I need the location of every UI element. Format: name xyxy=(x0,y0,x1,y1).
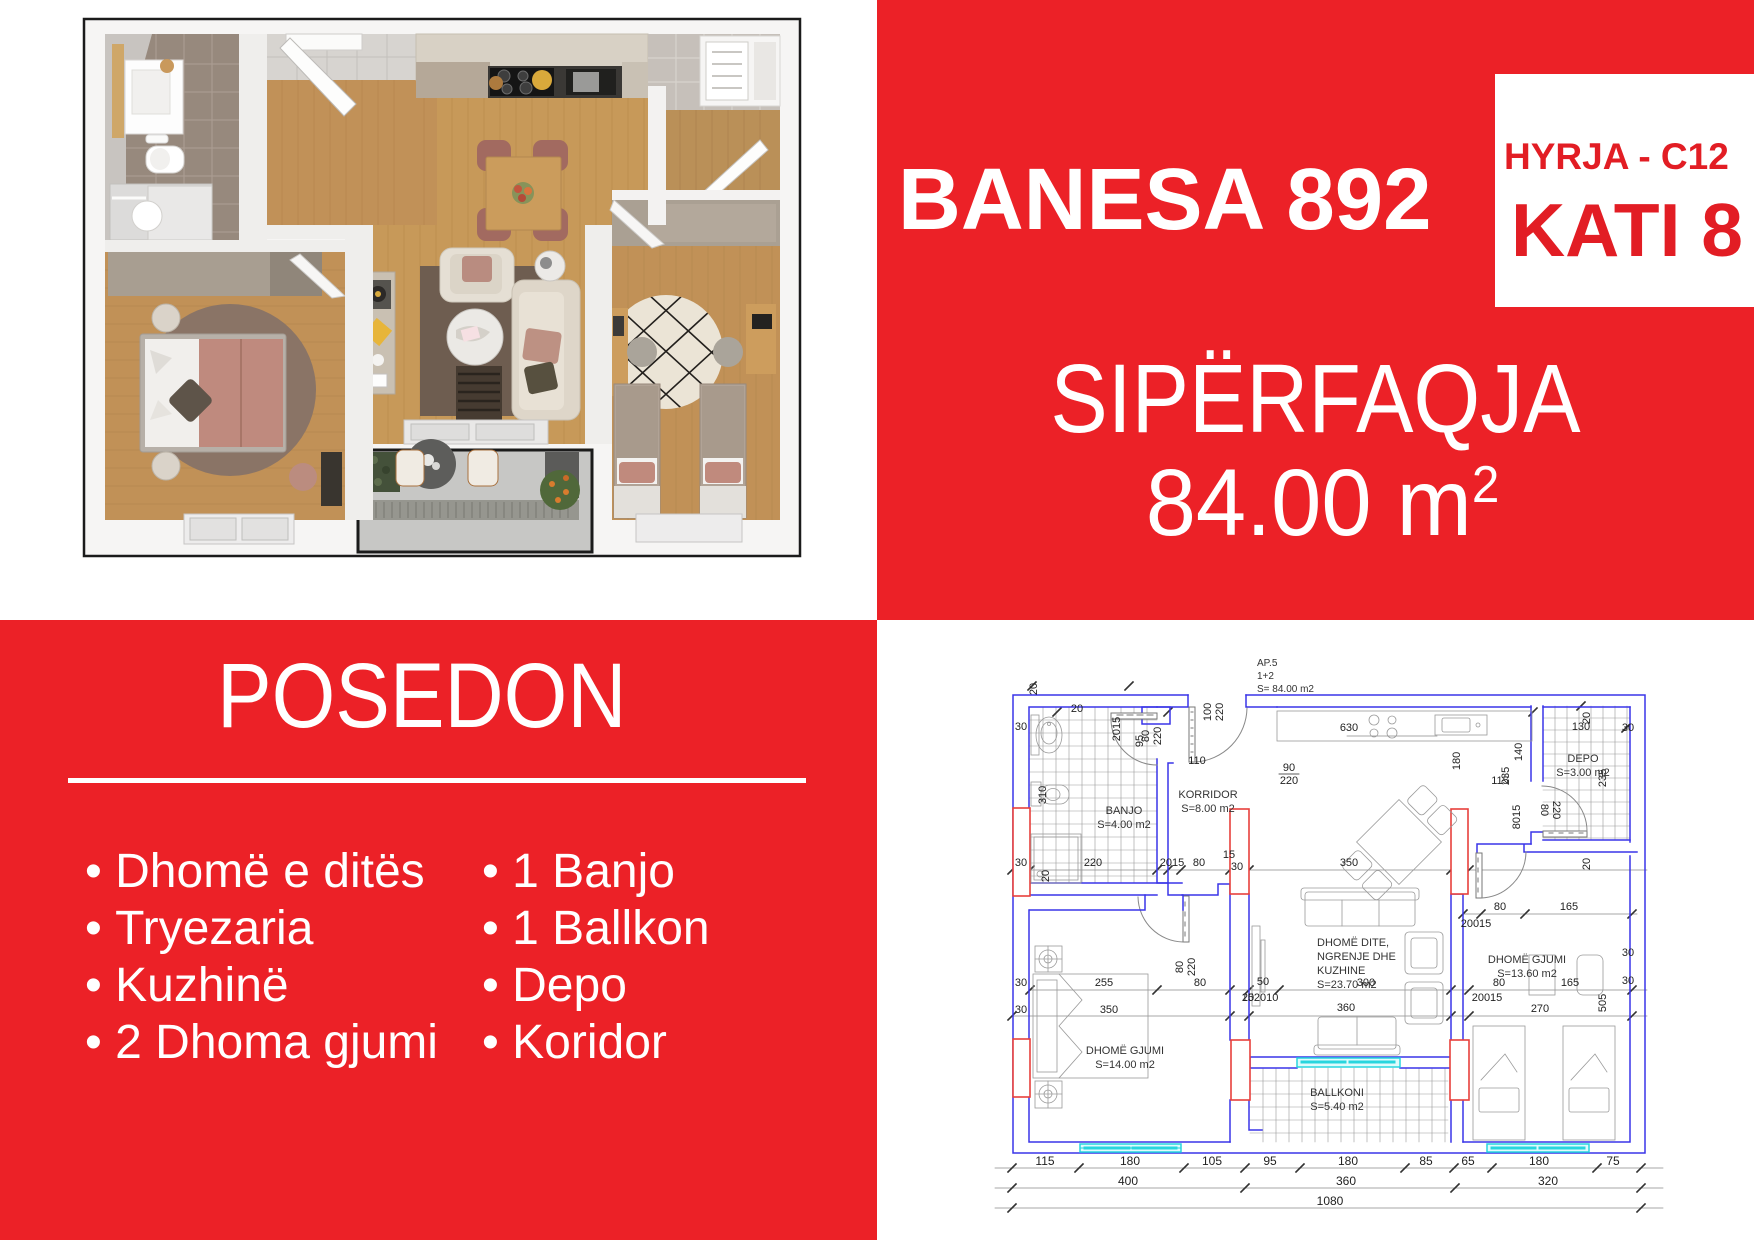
svg-text:165: 165 xyxy=(1560,901,1578,913)
svg-text:S= 84.00 m2: S= 84.00 m2 xyxy=(1257,684,1314,695)
svg-text:350: 350 xyxy=(1100,1004,1118,1016)
svg-text:S=13.60 m2: S=13.60 m2 xyxy=(1497,968,1557,980)
svg-text:80: 80 xyxy=(1140,730,1152,742)
svg-text:30: 30 xyxy=(1622,975,1634,987)
svg-text:90: 90 xyxy=(1283,762,1295,774)
svg-text:152010: 152010 xyxy=(1242,992,1279,1004)
svg-text:30: 30 xyxy=(1622,722,1634,734)
svg-text:80: 80 xyxy=(1194,977,1206,989)
svg-text:80: 80 xyxy=(1538,804,1550,816)
svg-text:360: 360 xyxy=(1336,1174,1356,1188)
svg-text:30: 30 xyxy=(1015,1004,1027,1016)
svg-text:DHOMË DITE,: DHOMË DITE, xyxy=(1317,937,1389,949)
svg-text:320: 320 xyxy=(1538,1174,1558,1188)
svg-text:235: 235 xyxy=(1500,767,1512,785)
svg-text:220: 220 xyxy=(1214,703,1226,721)
svg-text:KUZHINE: KUZHINE xyxy=(1317,965,1365,977)
svg-text:180: 180 xyxy=(1451,752,1463,770)
svg-text:85: 85 xyxy=(1419,1154,1433,1168)
svg-text:255: 255 xyxy=(1095,977,1113,989)
svg-text:105: 105 xyxy=(1202,1154,1222,1168)
svg-text:DHOMË GJUMI: DHOMË GJUMI xyxy=(1488,954,1566,966)
svg-text:AP.5: AP.5 xyxy=(1257,658,1278,669)
svg-text:80: 80 xyxy=(1193,857,1205,869)
svg-text:220: 220 xyxy=(1186,958,1198,976)
svg-text:S=14.00 m2: S=14.00 m2 xyxy=(1095,1059,1155,1071)
svg-text:300: 300 xyxy=(1357,977,1375,989)
svg-text:20: 20 xyxy=(1581,858,1593,870)
svg-text:220: 220 xyxy=(1550,801,1562,819)
svg-text:1+2: 1+2 xyxy=(1257,671,1274,682)
svg-text:15: 15 xyxy=(1223,849,1235,861)
svg-text:NGRENJE DHE: NGRENJE DHE xyxy=(1317,951,1396,963)
svg-text:2015: 2015 xyxy=(1160,857,1184,869)
svg-text:50: 50 xyxy=(1257,976,1269,988)
svg-text:30: 30 xyxy=(1015,857,1027,869)
svg-text:220: 220 xyxy=(1152,727,1164,745)
svg-text:DHOMË GJUMI: DHOMË GJUMI xyxy=(1086,1045,1164,1057)
svg-text:310: 310 xyxy=(1037,786,1049,804)
svg-text:S=4.00 m2: S=4.00 m2 xyxy=(1097,819,1151,831)
svg-text:80: 80 xyxy=(1494,901,1506,913)
svg-text:1080: 1080 xyxy=(1317,1194,1344,1208)
svg-text:BANJO: BANJO xyxy=(1106,805,1143,817)
svg-text:235: 235 xyxy=(1597,769,1609,787)
svg-text:180: 180 xyxy=(1120,1154,1140,1168)
svg-text:140: 140 xyxy=(1513,743,1525,761)
svg-text:630: 630 xyxy=(1340,722,1358,734)
svg-text:360: 360 xyxy=(1337,1002,1355,1014)
svg-text:80: 80 xyxy=(1493,977,1505,989)
svg-text:220: 220 xyxy=(1280,775,1298,787)
svg-text:110: 110 xyxy=(1188,755,1206,767)
svg-text:20: 20 xyxy=(1581,712,1593,724)
svg-text:S=8.00 m2: S=8.00 m2 xyxy=(1181,803,1235,815)
svg-text:KORRIDOR: KORRIDOR xyxy=(1178,789,1237,801)
svg-text:115: 115 xyxy=(1035,1154,1054,1168)
svg-text:75: 75 xyxy=(1606,1154,1620,1168)
svg-text:95: 95 xyxy=(1263,1154,1277,1168)
svg-text:400: 400 xyxy=(1118,1174,1138,1188)
svg-text:270: 270 xyxy=(1531,1003,1549,1015)
svg-text:65: 65 xyxy=(1461,1154,1475,1168)
svg-text:180: 180 xyxy=(1529,1154,1549,1168)
svg-text:30: 30 xyxy=(1622,947,1634,959)
svg-text:20015: 20015 xyxy=(1461,918,1492,930)
svg-text:2015: 2015 xyxy=(1111,717,1123,741)
svg-text:DEPO: DEPO xyxy=(1567,753,1599,765)
svg-text:80: 80 xyxy=(1174,961,1186,973)
svg-text:30: 30 xyxy=(1015,721,1027,733)
svg-text:220: 220 xyxy=(1084,857,1102,869)
svg-text:20015: 20015 xyxy=(1472,992,1503,1004)
svg-text:20: 20 xyxy=(1028,683,1040,695)
svg-text:505: 505 xyxy=(1597,994,1609,1012)
svg-text:8015: 8015 xyxy=(1511,805,1523,829)
svg-text:350: 350 xyxy=(1340,857,1358,869)
svg-text:180: 180 xyxy=(1338,1154,1358,1168)
svg-text:20: 20 xyxy=(1040,870,1052,882)
svg-text:S=5.40 m2: S=5.40 m2 xyxy=(1310,1101,1364,1113)
svg-text:BALLKONI: BALLKONI xyxy=(1310,1087,1364,1099)
svg-text:30: 30 xyxy=(1015,977,1027,989)
svg-text:100: 100 xyxy=(1202,703,1214,721)
svg-text:165: 165 xyxy=(1561,977,1579,989)
svg-text:20: 20 xyxy=(1071,703,1083,715)
svg-text:30: 30 xyxy=(1231,861,1243,873)
